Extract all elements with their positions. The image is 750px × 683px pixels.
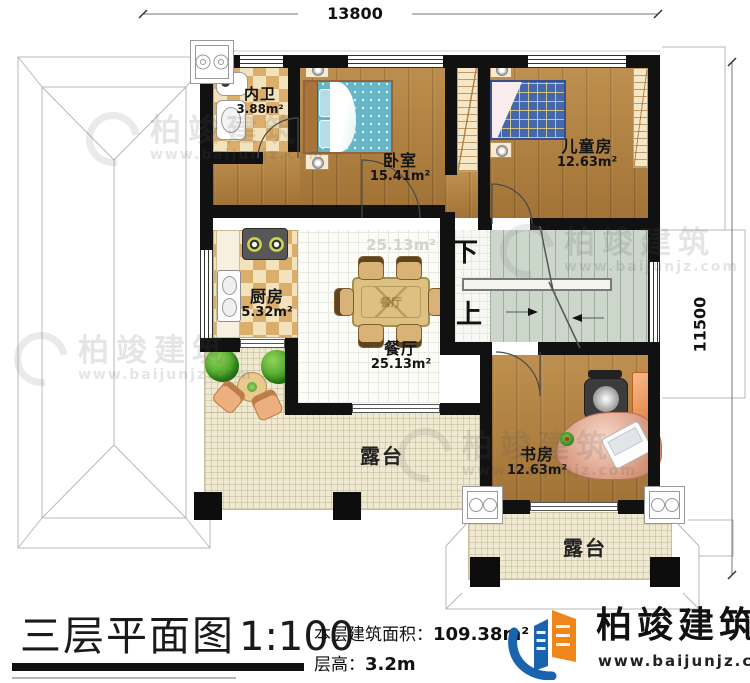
room-area: 12.63m² <box>472 464 602 479</box>
floor-plan-canvas: 餐厅 <box>0 0 750 683</box>
window <box>649 262 660 342</box>
stove <box>242 228 288 260</box>
room-area: 25.13m² <box>340 358 462 373</box>
dining-table-label: 餐厅 <box>354 294 428 310</box>
column <box>470 557 500 587</box>
dimension-top: 13800 <box>300 4 410 23</box>
room-label-bedroom: 卧室 15.41m² <box>340 152 460 185</box>
burner-icon <box>247 237 262 252</box>
stairs-down-label: 下 <box>452 232 478 269</box>
bed-headboard <box>305 82 318 152</box>
brand-logo-icon <box>500 604 592 680</box>
watermark-logo-icon <box>75 101 150 176</box>
nightstand <box>490 142 512 158</box>
room-name: 厨房 <box>212 288 322 306</box>
column <box>194 492 222 520</box>
bed-sheet-fold <box>492 82 522 138</box>
burner-icon <box>269 237 284 252</box>
column <box>333 492 361 520</box>
wall <box>200 338 240 352</box>
page-title: 三层平面图 <box>20 616 235 657</box>
floor-height-value: 3.2m <box>365 654 416 675</box>
room-name: 卧室 <box>340 152 460 170</box>
plant-icon <box>560 432 574 446</box>
dining-chair <box>358 256 384 280</box>
wall <box>213 152 263 164</box>
wall <box>200 205 445 218</box>
room-name: 餐厅 <box>340 340 462 358</box>
title-block: 三层平面图 1:100 <box>20 616 354 657</box>
plant-bush-icon <box>205 348 239 382</box>
room-label-study: 书房 12.63m² <box>472 446 602 479</box>
room-area: 5.32m² <box>212 306 322 321</box>
wall <box>480 500 530 514</box>
wall <box>618 500 660 514</box>
brand-website: www.baijunjz.com <box>598 652 750 670</box>
dining-table: 餐厅 <box>352 277 430 327</box>
title-underline <box>12 663 304 671</box>
wall <box>480 342 492 512</box>
double-bed <box>303 80 393 154</box>
kids-bed <box>490 80 566 140</box>
dimension-right: 11500 <box>691 280 710 370</box>
wall <box>440 403 480 415</box>
room-area: 15.41m² <box>340 170 460 185</box>
stair-handrail <box>462 278 612 291</box>
monitor <box>588 370 622 378</box>
room-label-kitchen: 厨房 5.32m² <box>212 288 322 321</box>
title-underline-thin <box>12 677 236 679</box>
floor-height-line: 层高：3.2m <box>314 650 416 675</box>
brand-name: 柏竣建筑 <box>596 608 750 644</box>
room-area: 3.88m² <box>215 103 305 117</box>
watermark-logo-icon <box>3 321 78 396</box>
floor-area-label: 本层建筑面积： <box>314 625 433 645</box>
room-label-kids-room: 儿童房 12.63m² <box>527 138 647 171</box>
wall <box>530 218 660 230</box>
dining-chair <box>396 256 422 280</box>
wall <box>478 218 492 230</box>
room-name: 内卫 <box>215 86 305 103</box>
room-label-dining: 餐厅 25.13m² <box>340 340 462 373</box>
column <box>650 557 680 587</box>
room-name: 书房 <box>472 446 602 464</box>
nightstand <box>305 154 329 170</box>
room-label-terrace-left: 露台 <box>330 440 434 469</box>
sliding-door <box>352 404 440 413</box>
floor-height-label: 层高： <box>314 655 365 675</box>
wall <box>538 342 660 355</box>
window <box>528 55 626 68</box>
room-area: 12.63m² <box>527 156 647 171</box>
floor-area-line: 本层建筑面积：109.38m² <box>314 620 529 645</box>
wall <box>478 55 490 230</box>
wall <box>285 403 352 415</box>
bed-sheet-fold <box>330 82 356 152</box>
stairs-up-label: 上 <box>456 294 482 331</box>
window <box>348 55 443 68</box>
room-label-terrace-bottom: 露台 <box>533 532 637 561</box>
dining-chair <box>334 288 354 316</box>
sliding-door <box>240 339 285 348</box>
room-name: 儿童房 <box>527 138 647 156</box>
wardrobe <box>457 64 478 172</box>
sliding-door <box>530 502 618 511</box>
window <box>240 55 283 68</box>
room-label-bathroom: 内卫 3.88m² <box>215 86 305 117</box>
